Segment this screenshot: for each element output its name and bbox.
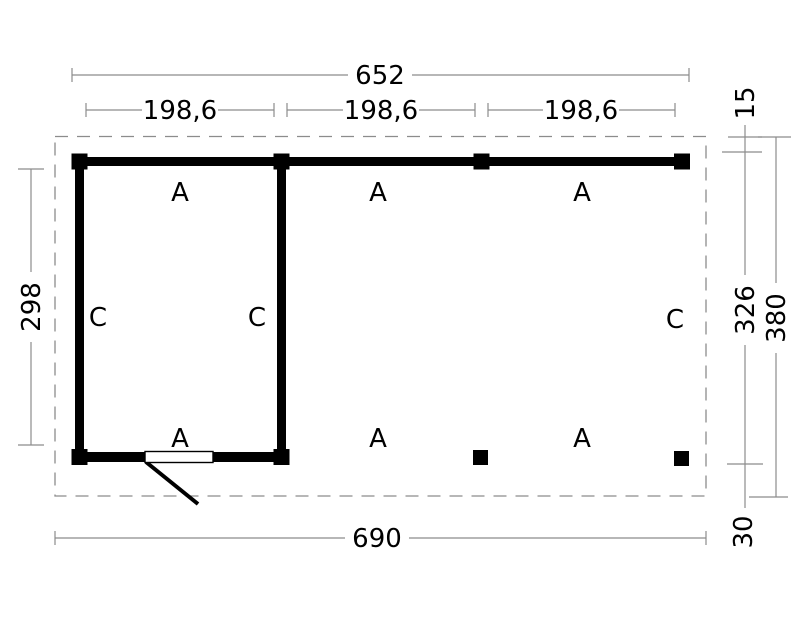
dim-right-inner: 15 326 30: [722, 81, 763, 556]
post-bottom-1: [72, 449, 88, 465]
marker-c-middle: C: [248, 303, 266, 333]
wall-middle: [277, 157, 286, 458]
marker-a-bottom-3: A: [573, 424, 591, 454]
dim-right-total-label: 380: [762, 293, 792, 343]
dim-top-total: 652: [72, 61, 689, 91]
dim-bay-2-label: 198,6: [344, 96, 418, 126]
post-top-1: [72, 154, 88, 170]
post-bottom-2: [274, 449, 290, 465]
dim-bottom-total: 690: [55, 524, 706, 554]
dim-bay-1-label: 198,6: [143, 96, 217, 126]
dim-right-bottom-label: 30: [729, 515, 759, 548]
post-top-3: [474, 154, 490, 170]
dim-bay-3-label: 198,6: [544, 96, 618, 126]
dim-left-room: 298: [17, 169, 47, 445]
marker-a-top-3: A: [573, 178, 591, 208]
post-top-4: [674, 154, 690, 170]
floor-plan-drawing: 652 198,6 198,6 198,6 298: [0, 0, 800, 619]
dim-right-inner-labelgroup: 326: [731, 275, 761, 345]
dim-right-total-labelgroup: 380: [762, 283, 792, 353]
wall-left: [75, 157, 84, 458]
marker-c-right: C: [666, 305, 684, 335]
post-top-2: [274, 154, 290, 170]
door-swing-line: [146, 462, 198, 504]
post-bottom-4: [674, 451, 689, 466]
dim-top-total-label: 652: [355, 61, 405, 91]
dim-right-inner-label: 326: [731, 285, 761, 335]
dim-right-top-labelgroup: 15: [731, 81, 761, 125]
dim-left-room-label: 298: [17, 282, 47, 332]
marker-a-bottom-2: A: [369, 424, 387, 454]
dim-bays: 198,6 198,6 198,6: [86, 96, 675, 126]
marker-a-bottom-1: A: [171, 424, 189, 454]
marker-a-top-1: A: [171, 178, 189, 208]
marker-a-top-2: A: [369, 178, 387, 208]
dim-right-bottom-labelgroup: 30: [729, 508, 759, 556]
post-bottom-3: [473, 450, 488, 465]
dim-right-top-label: 15: [731, 86, 761, 119]
dim-left-room-labelgroup: 298: [17, 272, 47, 342]
floor-plan-page: 652 198,6 198,6 198,6 298: [0, 0, 800, 619]
wall-top: [72, 157, 691, 166]
dim-bottom-total-label: 690: [352, 524, 402, 554]
marker-c-left: C: [89, 303, 107, 333]
